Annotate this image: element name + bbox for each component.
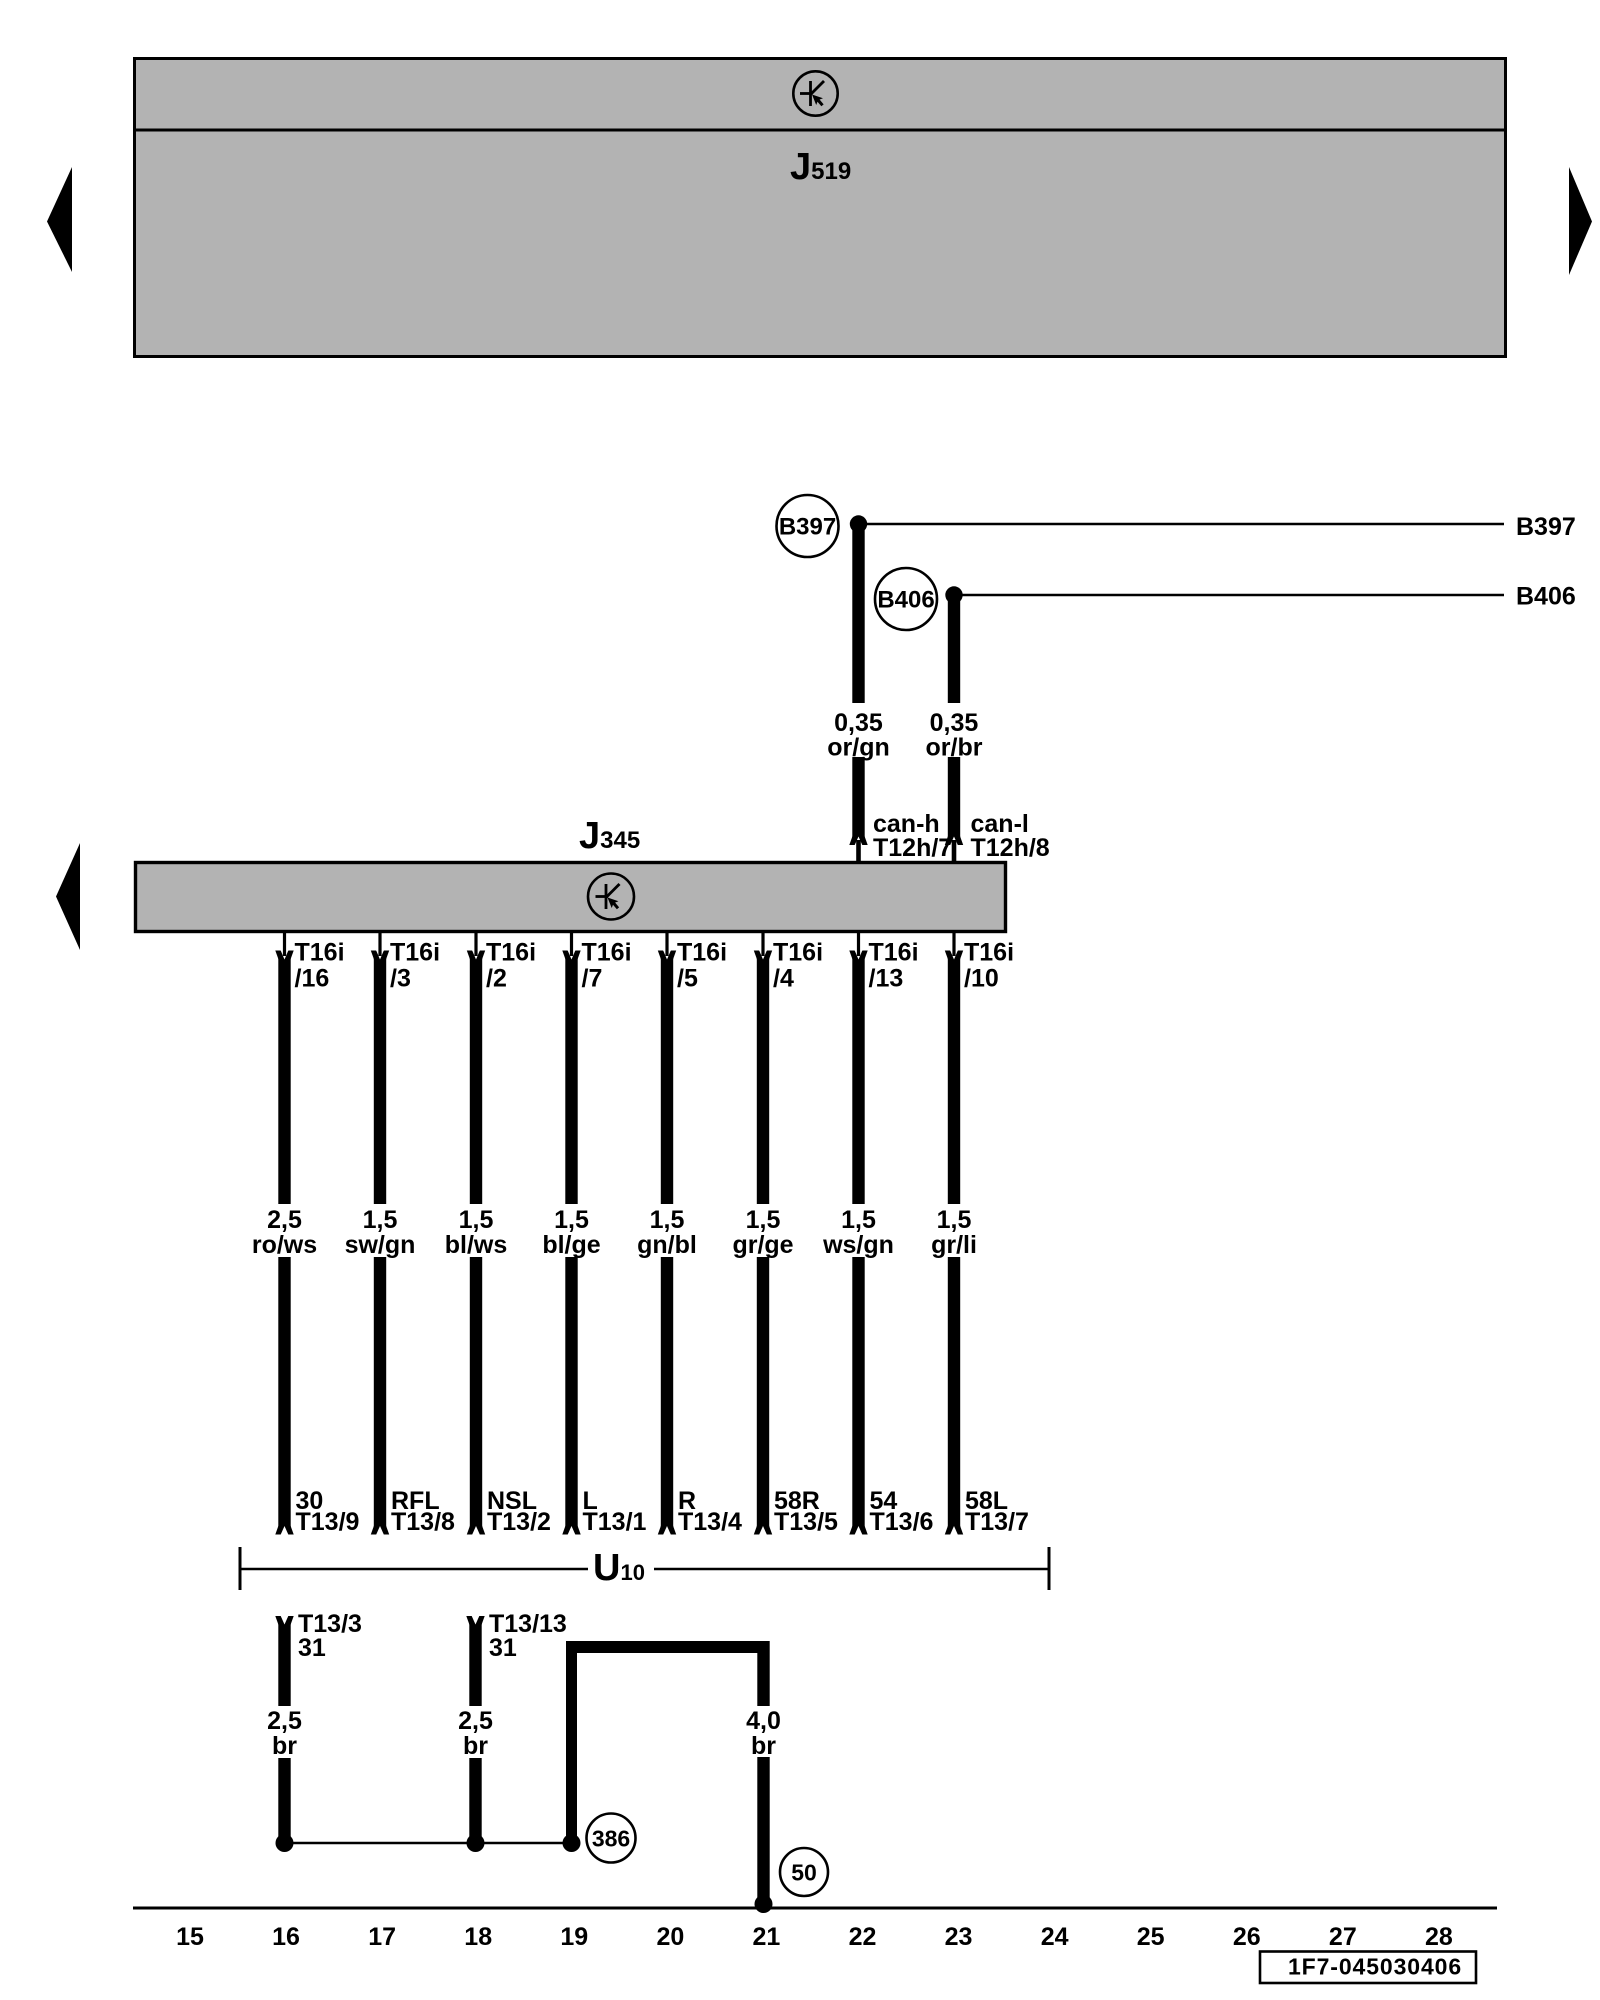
svg-text:/13: /13 [869, 965, 904, 993]
svg-text:T16i: T16i [582, 939, 632, 967]
svg-text:1,5: 1,5 [650, 1206, 685, 1234]
svg-text:bl/ge: bl/ge [542, 1231, 600, 1259]
svg-text:ws/gn: ws/gn [822, 1231, 894, 1259]
svg-text:/5: /5 [677, 965, 698, 993]
svg-text:1,5: 1,5 [363, 1206, 398, 1234]
svg-text:2,5: 2,5 [267, 1206, 302, 1234]
svg-text:T12h/7: T12h/7 [873, 834, 952, 862]
svg-text:T16i: T16i [964, 939, 1014, 967]
svg-text:2,5: 2,5 [267, 1707, 302, 1735]
svg-text:bl/ws: bl/ws [445, 1231, 508, 1259]
svg-text:or/gn: or/gn [827, 734, 890, 762]
svg-text:/2: /2 [486, 965, 507, 993]
svg-text:T13/9: T13/9 [296, 1508, 360, 1536]
svg-text:1,5: 1,5 [937, 1206, 972, 1234]
svg-text:1,5: 1,5 [554, 1206, 589, 1234]
svg-text:23: 23 [945, 1923, 973, 1951]
svg-text:T16i: T16i [869, 939, 919, 967]
svg-text:1,5: 1,5 [746, 1206, 781, 1234]
svg-text:B397: B397 [779, 514, 836, 541]
svg-text:B406: B406 [1516, 583, 1576, 611]
svg-text:22: 22 [849, 1923, 877, 1951]
svg-text:or/br: or/br [926, 734, 983, 762]
svg-text:1,5: 1,5 [841, 1206, 876, 1234]
svg-text:T13/4: T13/4 [678, 1508, 742, 1536]
svg-text:J345: J345 [579, 815, 640, 857]
svg-text:17: 17 [368, 1923, 396, 1951]
svg-text:28: 28 [1425, 1923, 1453, 1951]
svg-text:/16: /16 [295, 965, 330, 993]
svg-text:T13/5: T13/5 [774, 1508, 838, 1536]
svg-text:T13/2: T13/2 [487, 1508, 551, 1536]
svg-text:br: br [272, 1732, 297, 1760]
svg-text:T16i: T16i [390, 939, 440, 967]
svg-text:/10: /10 [964, 965, 999, 993]
svg-text:25: 25 [1137, 1923, 1165, 1951]
svg-text:/7: /7 [582, 965, 603, 993]
svg-text:br: br [751, 1732, 776, 1760]
svg-text:16: 16 [272, 1923, 300, 1951]
svg-text:4,0: 4,0 [746, 1707, 781, 1735]
svg-text:T16i: T16i [486, 939, 536, 967]
svg-text:/4: /4 [773, 965, 794, 993]
svg-text:gr/li: gr/li [931, 1231, 977, 1259]
svg-text:18: 18 [464, 1923, 492, 1951]
svg-text:B397: B397 [1516, 513, 1576, 541]
svg-text:T13/6: T13/6 [870, 1508, 934, 1536]
svg-text:1F7-045030406: 1F7-045030406 [1288, 1954, 1462, 1980]
svg-text:386: 386 [592, 1826, 630, 1852]
svg-text:gn/bl: gn/bl [637, 1231, 697, 1259]
svg-text:27: 27 [1329, 1923, 1357, 1951]
svg-text:31: 31 [298, 1634, 326, 1662]
svg-text:T13/7: T13/7 [965, 1508, 1029, 1536]
svg-text:1,5: 1,5 [459, 1206, 494, 1234]
svg-text:31: 31 [489, 1634, 517, 1662]
svg-text:T16i: T16i [677, 939, 727, 967]
svg-text:T16i: T16i [773, 939, 823, 967]
svg-text:T12h/8: T12h/8 [971, 834, 1050, 862]
svg-text:/3: /3 [390, 965, 411, 993]
svg-text:U10: U10 [593, 1547, 645, 1589]
svg-text:br: br [463, 1732, 488, 1760]
svg-text:21: 21 [753, 1923, 781, 1951]
svg-text:gr/ge: gr/ge [732, 1231, 793, 1259]
svg-text:T13/8: T13/8 [391, 1508, 455, 1536]
svg-text:15: 15 [176, 1923, 204, 1951]
svg-text:19: 19 [560, 1923, 588, 1951]
svg-text:ro/ws: ro/ws [252, 1231, 317, 1259]
svg-text:sw/gn: sw/gn [345, 1231, 416, 1259]
svg-text:26: 26 [1233, 1923, 1261, 1951]
svg-text:24: 24 [1041, 1923, 1069, 1951]
svg-text:B406: B406 [877, 587, 934, 614]
svg-text:T13/1: T13/1 [583, 1508, 647, 1536]
svg-text:T16i: T16i [295, 939, 345, 967]
svg-text:2,5: 2,5 [458, 1707, 493, 1735]
svg-text:20: 20 [656, 1923, 684, 1951]
svg-text:50: 50 [791, 1860, 817, 1886]
